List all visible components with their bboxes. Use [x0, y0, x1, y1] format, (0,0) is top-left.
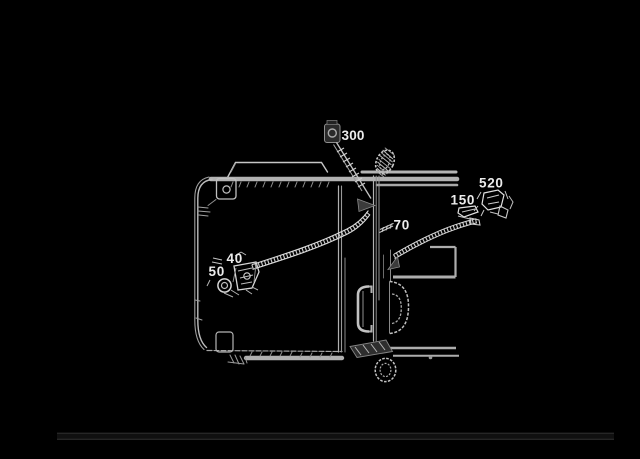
svg-text:70: 70 — [394, 218, 410, 233]
svg-text:150: 150 — [451, 193, 476, 208]
svg-text:50: 50 — [209, 264, 225, 279]
svg-text:520: 520 — [479, 176, 504, 191]
svg-text:40: 40 — [227, 251, 243, 266]
svg-text:300: 300 — [342, 128, 365, 143]
